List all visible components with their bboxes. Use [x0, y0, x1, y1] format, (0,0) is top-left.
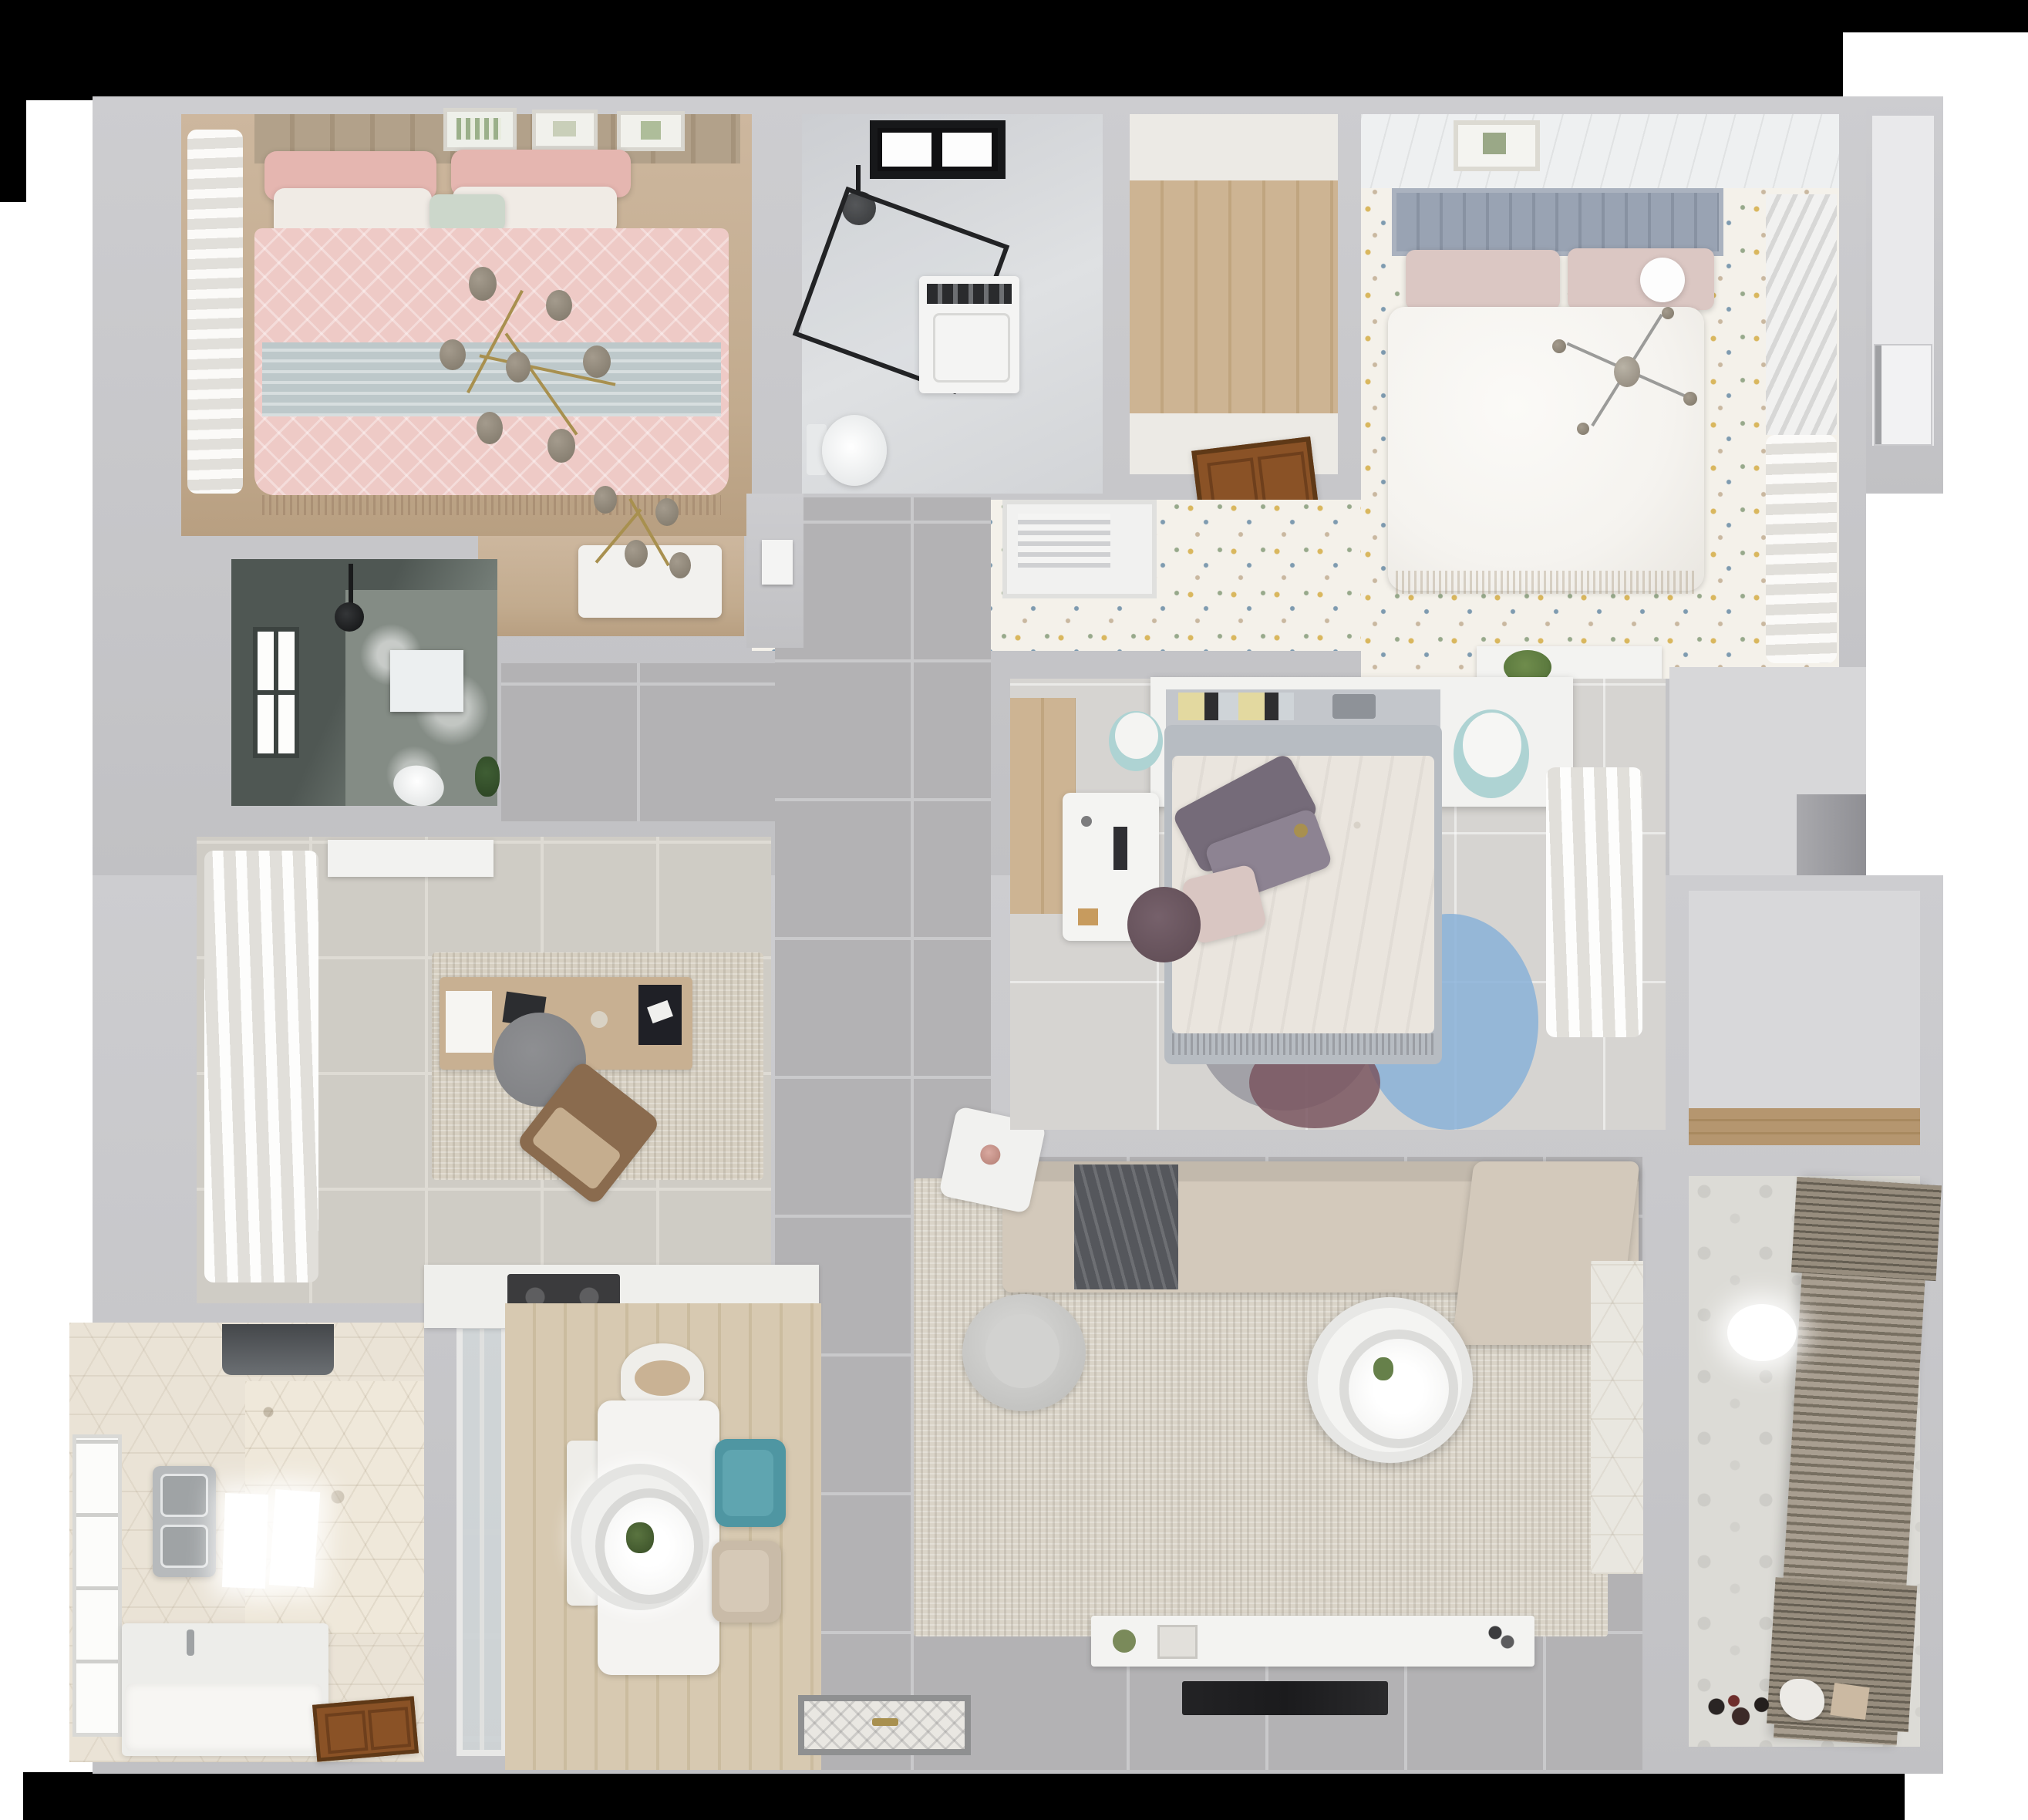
curved-chair	[621, 1343, 704, 1404]
room-balcony	[1689, 1176, 1920, 1747]
letterbox-top-bar	[0, 0, 2028, 32]
branch-chandelier	[432, 253, 648, 484]
table-sprig	[1373, 1357, 1393, 1380]
tv-console	[1091, 1616, 1534, 1667]
room-storage	[1689, 891, 1920, 1145]
sheer-curtain	[1546, 767, 1642, 1037]
counter-basin-block	[125, 1684, 322, 1751]
decor-green-bowl	[1113, 1630, 1136, 1653]
bed-frame	[1164, 725, 1442, 1064]
curtain-panel	[1766, 435, 1837, 663]
window-pane	[882, 133, 931, 167]
chair-teal	[715, 1439, 786, 1527]
letterbox-left-sliver	[0, 32, 26, 202]
hex-tile-strip	[1591, 1261, 1643, 1574]
stool-top	[1115, 713, 1158, 759]
notebook-art	[647, 1000, 673, 1023]
pillow-mint	[430, 194, 505, 231]
frame-art	[456, 118, 501, 140]
gold-accent	[1294, 824, 1308, 838]
toilet	[807, 412, 887, 489]
plant	[475, 757, 500, 797]
chair-beige	[712, 1541, 781, 1623]
closet-wood-floor	[1130, 180, 1338, 413]
flower-decor	[979, 1143, 1002, 1167]
sputnik-chandelier	[1546, 299, 1708, 446]
sheer-curtains	[204, 851, 318, 1282]
room-dining	[505, 1303, 821, 1770]
frame-art	[1483, 133, 1506, 154]
window-pane	[942, 133, 992, 167]
blind-stack-top	[1791, 1177, 1942, 1281]
letterbox-top-band	[23, 32, 1843, 100]
wall-panel-box	[762, 540, 793, 585]
pillow-blush	[1406, 250, 1560, 310]
room-walk-in	[1669, 667, 1866, 875]
window-mullion	[274, 632, 278, 753]
room-bathroom-main	[802, 114, 1103, 494]
wooden-door	[312, 1696, 419, 1761]
floor-toys	[1703, 1691, 1772, 1730]
desk-lamp	[1081, 816, 1092, 827]
books	[1178, 693, 1294, 720]
decor-items	[1486, 1623, 1517, 1654]
room-kitchen	[69, 1323, 424, 1762]
sofa-blanket	[1074, 1164, 1178, 1289]
room-study	[197, 837, 771, 1303]
double-sink	[153, 1466, 216, 1577]
room-bedroom-middle	[1010, 679, 1666, 1130]
washer-panel	[927, 284, 1012, 304]
laptop	[1113, 827, 1127, 870]
paper	[446, 991, 492, 1053]
room-vanity-nook	[478, 536, 744, 636]
glass-partition	[456, 1323, 507, 1756]
dark-opening	[1797, 794, 1866, 875]
chair-seat	[635, 1360, 690, 1396]
branch-chandelier	[586, 478, 702, 594]
chair-seat	[719, 1550, 769, 1612]
wall-nub	[746, 494, 803, 648]
room-bathroom-dark	[231, 559, 497, 806]
wall-frame	[617, 111, 685, 151]
coffee-table	[1307, 1297, 1473, 1463]
wall-frame	[443, 108, 517, 151]
hex-accent-wall	[245, 1381, 424, 1634]
table-inner-ring	[1339, 1330, 1458, 1448]
venetian-blinds	[1774, 1178, 1931, 1745]
room-hall-entry-top	[1872, 116, 1934, 446]
kitchen-window	[72, 1434, 122, 1737]
armchair-seat	[985, 1314, 1059, 1388]
stool-round	[1454, 709, 1529, 798]
room-living	[991, 1157, 1642, 1770]
small-box	[1830, 1683, 1869, 1720]
stool-top	[1463, 713, 1521, 777]
wall-frame	[532, 110, 598, 150]
chair-seat	[723, 1450, 773, 1516]
faucet	[187, 1630, 194, 1656]
ceiling-light	[1727, 1304, 1797, 1361]
desk-items	[1078, 908, 1098, 925]
curtain-panel	[187, 130, 243, 494]
bathroom-window	[870, 120, 1006, 179]
letterbox-bottom-bar	[23, 1772, 1905, 1820]
range-hood	[222, 1324, 334, 1375]
stool-round	[1109, 711, 1163, 771]
room-bedroom-master	[1361, 114, 1839, 679]
toilet-bowl	[822, 415, 887, 486]
frame-art	[641, 121, 661, 140]
washer-drum	[933, 313, 1010, 383]
floorplan-stage	[0, 0, 2028, 1820]
desk-chair-plum	[1127, 887, 1201, 962]
room-corridor	[501, 663, 775, 821]
door-panel	[368, 1707, 411, 1750]
ceiling-light-reflection	[269, 1489, 321, 1588]
duvet-fringe	[1396, 571, 1696, 594]
wall-cabinet	[328, 840, 494, 877]
bed-fringe	[1172, 1033, 1434, 1055]
wooden-shelf	[1689, 1108, 1920, 1145]
notebook-black	[638, 985, 682, 1045]
shower-head	[335, 602, 364, 632]
sink-basin	[160, 1525, 208, 1568]
shelf-decor	[1332, 694, 1376, 719]
pendant-lamp	[571, 1464, 709, 1610]
sink-basin	[160, 1474, 208, 1517]
vent-unit	[1002, 500, 1157, 598]
bathroom-window	[253, 627, 299, 758]
entry-doormat	[798, 1695, 971, 1755]
wall-frame	[1454, 120, 1540, 171]
vent-grille	[1018, 514, 1110, 568]
wall-niche	[390, 650, 463, 712]
ceiling-light-reflection	[222, 1493, 268, 1589]
louvered-wardrobe	[1766, 194, 1837, 435]
frame-art	[553, 121, 576, 136]
ceiling-planks	[1361, 114, 1839, 188]
room-closet	[1130, 114, 1338, 474]
room-bedroom-pink	[181, 114, 752, 536]
armchair	[962, 1294, 1086, 1411]
desk-plant	[591, 1011, 608, 1028]
pendant-greenery	[626, 1522, 654, 1553]
pillow-round-white	[1640, 258, 1685, 302]
washing-machine	[919, 276, 1019, 393]
tufted-headboard	[1392, 188, 1723, 256]
decor-boxes	[1157, 1625, 1198, 1659]
white-door	[1874, 344, 1932, 446]
partition-mullion	[480, 1329, 484, 1750]
tv-screen	[1182, 1681, 1388, 1715]
door-panel	[325, 1710, 368, 1754]
brass-handles	[872, 1718, 898, 1726]
